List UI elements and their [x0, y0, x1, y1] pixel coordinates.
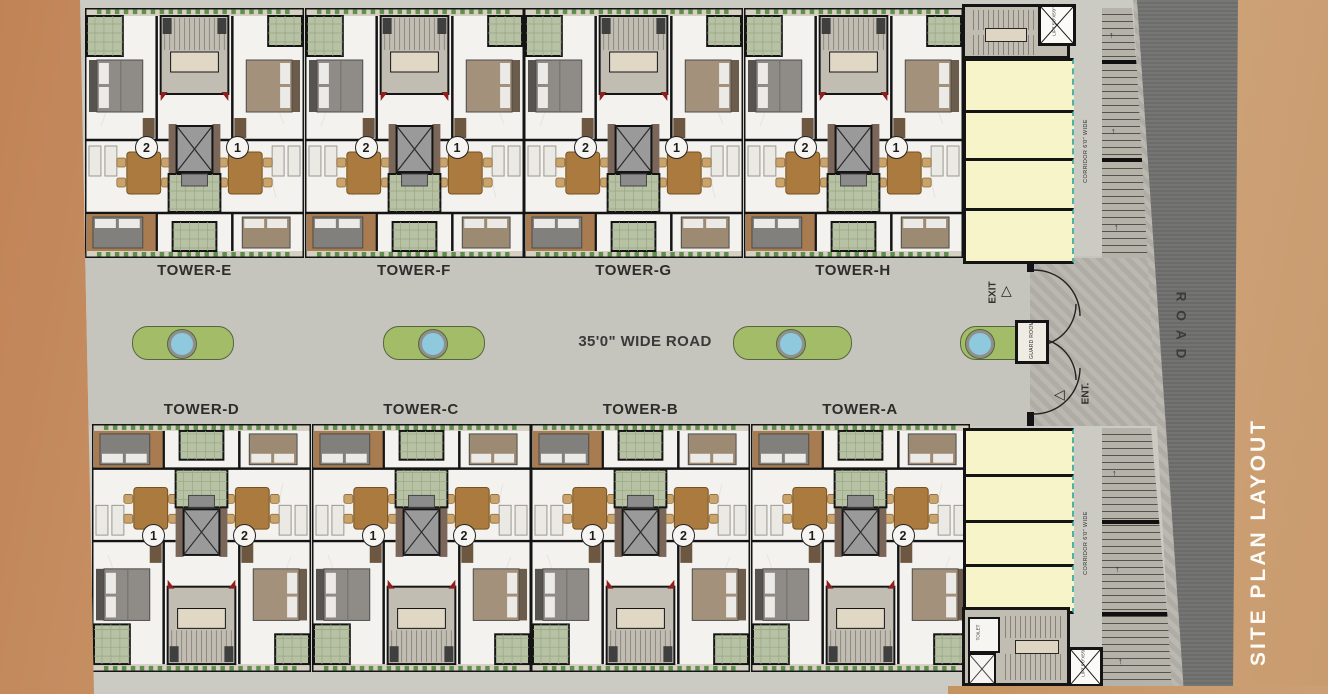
lift-label-bottom: LIFT 5'0"X5'0" — [1081, 633, 1086, 693]
shop-room — [963, 58, 1074, 116]
unit-number-badge: 2 — [453, 524, 476, 547]
site-plan-ground: 2 1 TOWER-E 2 1 TOWER — [0, 0, 1328, 694]
fountain-pool — [777, 330, 805, 358]
road-label: ROAD — [1174, 285, 1189, 375]
unit-number-badge: 2 — [892, 524, 915, 547]
unit-number-badge: 2 — [672, 524, 695, 547]
tower-block: 2 1 TOWER-F — [305, 8, 524, 258]
shop-column-bottom — [963, 428, 1069, 608]
fountain-pool — [966, 330, 994, 358]
tower-block: 1 2 TOWER-C — [312, 424, 531, 672]
tower-block: 1 2 TOWER-D — [92, 424, 311, 672]
tower-floorplan — [744, 8, 963, 258]
tower-label: TOWER-A — [751, 401, 970, 418]
tower-block: 1 2 TOWER-B — [531, 424, 750, 672]
background-strip — [948, 686, 1328, 694]
unit-number-badge: 1 — [446, 136, 469, 159]
unit-number-badge: 1 — [885, 136, 908, 159]
tower-label: TOWER-D — [92, 401, 311, 418]
exit-arrow-icon: △ — [1001, 282, 1012, 299]
exit-label: EXIT — [988, 263, 999, 323]
lift-shaft-top — [1038, 4, 1076, 46]
tower-label: TOWER-C — [312, 401, 531, 418]
tower-label: TOWER-B — [531, 401, 750, 418]
entry-label: ENT. — [1081, 364, 1092, 424]
tower-block: 2 1 TOWER-E — [85, 8, 304, 258]
unit-number-badge: 2 — [794, 136, 817, 159]
tower-row-top: 2 1 TOWER-E 2 1 TOWER — [85, 8, 965, 258]
shop-room — [963, 474, 1074, 526]
toilet-label: TOILET — [976, 603, 981, 663]
tower-floorplan — [531, 424, 750, 672]
shop-room — [963, 520, 1074, 570]
guard-room-label: GUARD ROOM — [1029, 310, 1035, 370]
tower-block: 1 2 TOWER-A — [751, 424, 970, 672]
lift-shaft-bottom — [1068, 647, 1103, 687]
unit-number-badge: 1 — [142, 524, 165, 547]
shop-room — [963, 110, 1074, 164]
tower-floorplan — [312, 424, 531, 672]
tower-label: TOWER-F — [305, 262, 524, 279]
fountain-pool — [168, 330, 196, 358]
unit-number-badge: 1 — [226, 136, 249, 159]
unit-number-badge: 1 — [581, 524, 604, 547]
site-plan-screenshot: 2 1 TOWER-E 2 1 TOWER — [0, 0, 1328, 694]
corridor-label-bottom: CORRIDOR 6'0" WIDE — [1083, 483, 1089, 603]
unit-number-badge: 1 — [362, 524, 385, 547]
unit-number-badge: 2 — [233, 524, 256, 547]
tower-label: TOWER-E — [85, 262, 304, 279]
shop-room — [963, 208, 1074, 264]
shop-room — [963, 428, 1074, 480]
tower-block: 2 1 TOWER-H — [744, 8, 963, 258]
tower-floorplan — [85, 8, 304, 258]
tower-floorplan — [92, 424, 311, 672]
central-road-width-label: 35'0" WIDE ROAD — [560, 333, 730, 350]
page-title: SITE PLAN LAYOUT — [1247, 392, 1271, 692]
unit-number-badge: 2 — [135, 136, 158, 159]
tower-row-bottom: 1 2 TOWER-D 1 2 TOWER — [92, 424, 972, 672]
tower-label: TOWER-G — [524, 262, 743, 279]
corridor-label-top: CORRIDOR 6'0" WIDE — [1083, 91, 1089, 211]
unit-number-badge: 2 — [355, 136, 378, 159]
tower-floorplan — [524, 8, 743, 258]
shop-column-top — [963, 58, 1069, 258]
unit-number-badge: 1 — [801, 524, 824, 547]
tower-floorplan — [305, 8, 524, 258]
tower-block: 2 1 TOWER-G — [524, 8, 743, 258]
entry-arrow-icon: ◁ — [1054, 386, 1065, 403]
unit-number-badge: 1 — [665, 136, 688, 159]
unit-number-badge: 2 — [574, 136, 597, 159]
shop-room — [963, 158, 1074, 214]
tower-label: TOWER-H — [744, 262, 963, 279]
fountain-pool — [419, 330, 447, 358]
lift-label-top: LIFT 5'0"X5'0" — [1052, 0, 1057, 52]
tower-floorplan — [751, 424, 970, 672]
